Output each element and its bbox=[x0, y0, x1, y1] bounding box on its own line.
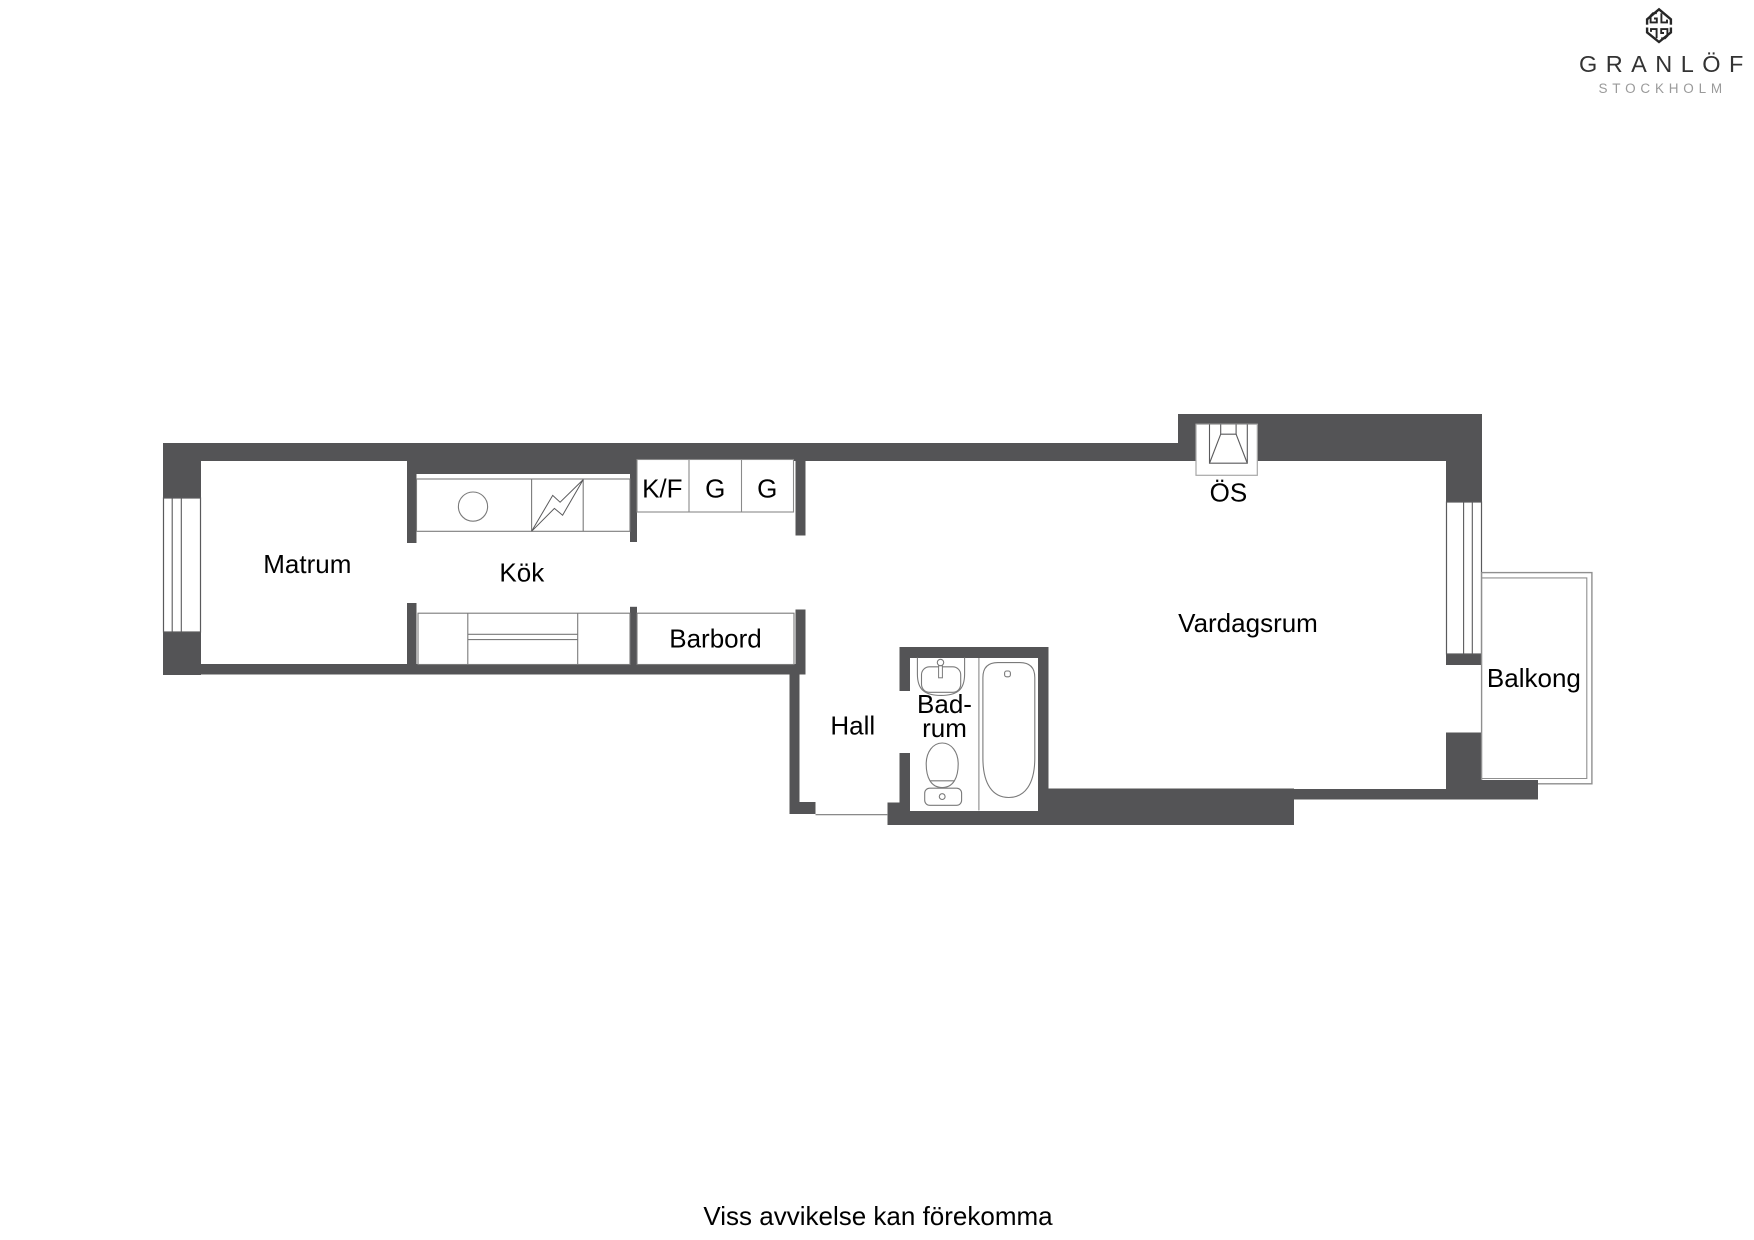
svg-text:STOCKHOLM: STOCKHOLM bbox=[1599, 81, 1727, 96]
svg-text:Hall: Hall bbox=[830, 711, 875, 741]
svg-text:GRANLÖF: GRANLÖF bbox=[1579, 51, 1752, 77]
svg-text:rum: rum bbox=[922, 713, 967, 743]
svg-text:Matrum: Matrum bbox=[263, 549, 351, 579]
svg-text:Kök: Kök bbox=[499, 557, 545, 587]
svg-text:Balkong: Balkong bbox=[1487, 663, 1581, 693]
svg-text:G: G bbox=[705, 473, 725, 503]
svg-text:Vardagsrum: Vardagsrum bbox=[1178, 608, 1318, 638]
svg-text:ÖS: ÖS bbox=[1210, 478, 1248, 508]
svg-text:G: G bbox=[757, 473, 777, 503]
svg-text:Viss avvikelse kan förekomma: Viss avvikelse kan förekomma bbox=[703, 1201, 1053, 1231]
svg-text:Barbord: Barbord bbox=[669, 624, 762, 654]
svg-text:K/F: K/F bbox=[642, 473, 682, 503]
